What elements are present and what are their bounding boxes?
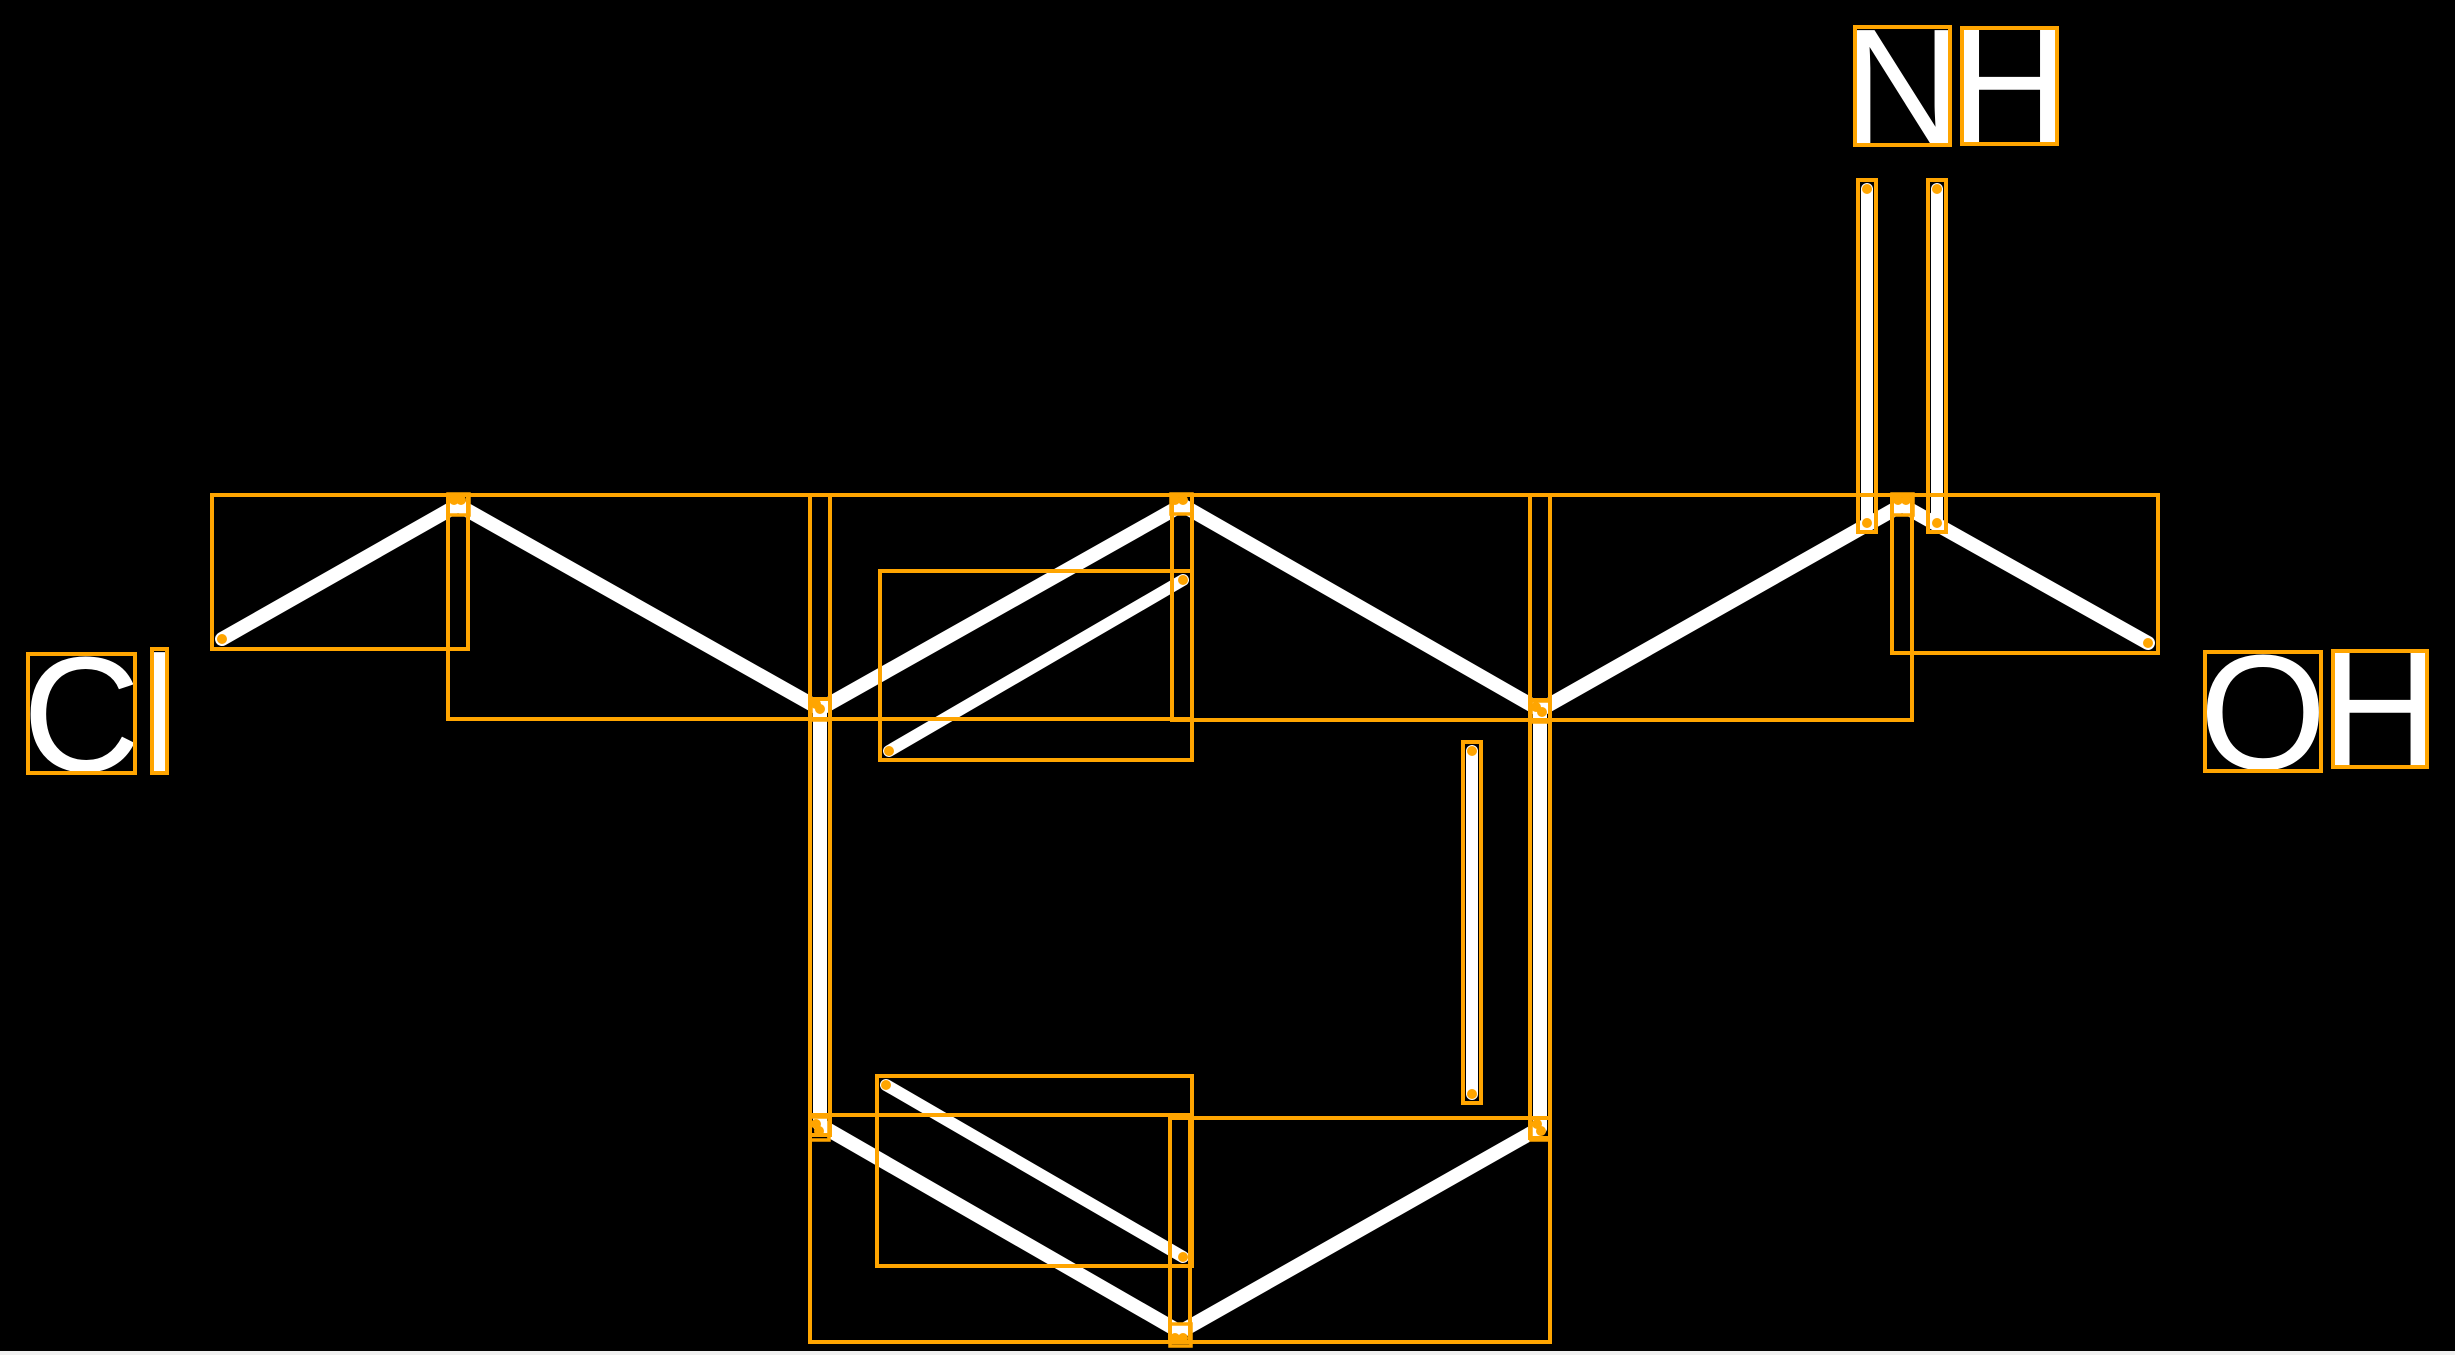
background	[0, 0, 2455, 1355]
endpoint-dot-19	[1178, 575, 1188, 585]
endpoint-dot-21	[1178, 1252, 1188, 1262]
endpoint-dot-27	[1932, 518, 1942, 528]
endpoint-dot-25	[1862, 518, 1872, 528]
endpoint-dot-15	[1536, 1126, 1546, 1136]
atom-label-hydroxy-o: O	[2199, 621, 2327, 804]
atom-label-hydroxy-h: H	[2321, 617, 2439, 800]
endpoint-dot-17	[1178, 1333, 1188, 1343]
endpoint-dot-18	[884, 746, 894, 756]
bottom-edge-strip	[0, 1351, 2455, 1355]
atom-label-chloro-c: C	[22, 623, 140, 806]
endpoint-dot-7	[1178, 495, 1188, 505]
annotated-molecule-image: NHClOH	[0, 0, 2455, 1355]
endpoint-dot-1	[2143, 638, 2153, 648]
endpoint-dot-13	[814, 1126, 824, 1136]
endpoint-dot-22	[1467, 746, 1477, 756]
endpoint-dot-0	[217, 634, 227, 644]
endpoint-dot-5	[815, 704, 825, 714]
endpoint-dot-3	[456, 495, 466, 505]
endpoint-dot-20	[881, 1080, 891, 1090]
endpoint-dot-9	[1537, 707, 1547, 717]
endpoint-dot-24	[1862, 184, 1872, 194]
molecule-canvas: NHClOH	[0, 0, 2455, 1355]
endpoint-dot-26	[1932, 184, 1942, 194]
endpoint-dot-23	[1467, 1089, 1477, 1099]
endpoint-dot-11	[1901, 495, 1911, 505]
